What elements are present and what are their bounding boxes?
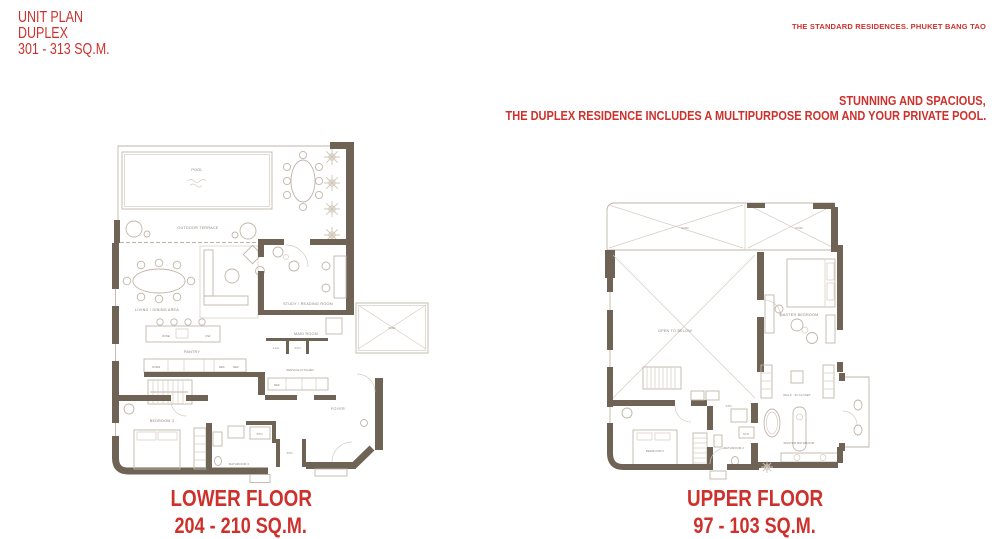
wall xyxy=(186,395,208,401)
wall xyxy=(266,338,328,341)
label-foyer: FOYER xyxy=(331,407,345,411)
wall xyxy=(114,220,120,243)
wall xyxy=(272,421,276,443)
title-block: UNIT PLAN DUPLEX 301 - 313 SQ.M. xyxy=(18,10,135,58)
wall xyxy=(354,448,372,466)
wall xyxy=(112,243,119,289)
wall xyxy=(286,341,289,354)
wall xyxy=(306,341,309,354)
door-arc xyxy=(764,300,781,317)
wall xyxy=(691,400,707,406)
label-open-to-below: OPEN TO BELOW xyxy=(658,329,692,333)
upper-floor-plan: VOID VOID OPEN TO BELOW xyxy=(585,195,891,487)
wc-room xyxy=(839,373,869,451)
wall xyxy=(115,395,171,401)
label-sto2-upper: STO. xyxy=(743,432,750,436)
wall xyxy=(751,443,758,465)
void-right: VOID xyxy=(748,205,834,248)
bedroom2-furniture xyxy=(622,408,707,469)
wall xyxy=(276,439,280,467)
pool: POOL xyxy=(122,152,272,209)
wall xyxy=(831,207,838,252)
label-dw: DW xyxy=(205,334,210,338)
wall xyxy=(208,468,268,475)
bathroom2-fixtures xyxy=(714,409,747,466)
tagline: STUNNING AND SPACIOUS, THE DUPLEX RESIDE… xyxy=(440,94,986,124)
wall xyxy=(258,239,284,245)
wall xyxy=(607,367,613,407)
wall xyxy=(607,278,613,292)
void-area: VOID xyxy=(356,303,428,353)
label-void: VOID xyxy=(388,326,395,330)
wall xyxy=(302,439,306,467)
label-service-kitchen: SERVICE KITCHEN xyxy=(286,368,314,372)
label-bedroom2: BEDROOM 2 xyxy=(646,449,665,453)
entry-steps xyxy=(315,469,347,476)
label-sto2: STO. xyxy=(256,432,263,436)
tagline-line2: THE DUPLEX RESIDENCE INCLUDES A MULTIPUR… xyxy=(505,109,986,124)
label-walk-in-closet: WALK - IN CLOSET xyxy=(783,393,811,397)
label-sto1-upper: STO. xyxy=(725,404,732,408)
brand-line: THE STANDARD RESIDENCES. PHUKET BANG TAO xyxy=(792,22,986,31)
label-ref3: REF xyxy=(274,383,280,387)
plants xyxy=(324,149,340,243)
wall xyxy=(757,362,764,372)
wall xyxy=(605,250,615,278)
wall xyxy=(837,245,843,330)
wall xyxy=(112,361,119,423)
wall xyxy=(751,403,758,423)
maid-bed xyxy=(326,318,342,334)
door-arc xyxy=(675,406,691,422)
label-void2: VOID xyxy=(795,226,802,230)
study-furniture xyxy=(273,247,346,298)
lower-floor-caption: LOWER FLOOR 204 - 210 SQ.M. xyxy=(111,487,371,537)
wall xyxy=(258,373,265,395)
service-kitchen-counter: REF xyxy=(268,378,328,390)
open-to-below: OPEN TO BELOW xyxy=(613,255,755,398)
bathroom3-fixtures xyxy=(213,426,244,466)
label-outdoor-terrace: OUTDOOR TERRACE xyxy=(177,226,218,230)
page-subtitle: DUPLEX xyxy=(18,26,68,42)
door-arc xyxy=(357,374,375,392)
wall xyxy=(246,421,276,425)
kitchen-island: WINE DW xyxy=(146,319,220,342)
label-pool: POOL xyxy=(191,168,202,172)
entry-step xyxy=(250,475,270,483)
label-sto1: STO. xyxy=(294,346,301,350)
label-pantry: PANTRY xyxy=(184,350,200,354)
wall xyxy=(144,372,265,377)
label-sto3: STO. xyxy=(286,451,293,455)
label-maid-room: MAID ROOM xyxy=(294,332,318,336)
label-study: STUDY / READING ROOM xyxy=(283,302,333,306)
page-title: UNIT PLAN xyxy=(18,10,83,26)
upper-floor-caption: UPPER FLOOR 97 - 103 SQ.M. xyxy=(625,487,885,537)
upper-floor-area: 97 - 103 SQ.M. xyxy=(694,515,816,537)
wall xyxy=(757,252,764,300)
wall xyxy=(346,243,354,315)
wall xyxy=(346,142,354,243)
wall xyxy=(258,271,264,315)
lower-floor-plan: POOL OUTDOOR TERRACE xyxy=(110,140,432,486)
wall xyxy=(306,462,356,469)
pantry-counter: OVEN REF REF xyxy=(144,359,246,372)
size-range: 301 - 313 SQ.M. xyxy=(18,42,110,58)
wall xyxy=(140,468,208,475)
void-left: VOID xyxy=(609,205,743,248)
label-void1: VOID xyxy=(681,226,688,230)
wall xyxy=(747,203,765,208)
wall xyxy=(314,395,336,400)
label-oven: OVEN xyxy=(152,365,161,369)
wall xyxy=(258,245,264,257)
lower-floor-area: 204 - 210 SQ.M. xyxy=(175,515,307,537)
label-bathroom3: BATHROOM 3 xyxy=(229,462,249,466)
wall xyxy=(206,423,212,469)
label-wine: WINE xyxy=(162,334,170,338)
label-bathroom2: BATHROOM 2 xyxy=(724,446,744,450)
wall xyxy=(727,464,759,470)
wall xyxy=(707,406,713,430)
lower-floor-title: LOWER FLOOR xyxy=(170,487,311,510)
wall xyxy=(112,306,119,344)
master-bathroom-fixtures xyxy=(764,407,839,462)
tagline-line1: STUNNING AND SPACIOUS, xyxy=(839,94,986,109)
label-master-bathroom: MASTER BATHROOM xyxy=(784,441,815,445)
label-living-dining: LIVING / DINING AREA xyxy=(135,308,179,312)
bedroom3-furniture xyxy=(124,404,206,469)
upper-floor-title: UPPER FLOOR xyxy=(687,487,823,510)
wall xyxy=(610,453,631,467)
wall xyxy=(837,362,843,372)
lounge-chairs xyxy=(126,221,256,239)
door-arc xyxy=(332,442,352,462)
storage-box xyxy=(706,391,719,400)
label-lau: LAU xyxy=(273,346,279,350)
brand-text: THE STANDARD RESIDENCES. PHUKET BANG TAO xyxy=(792,22,986,31)
terrace-outline xyxy=(118,146,346,241)
master-bedroom-furniture xyxy=(765,259,835,344)
wall xyxy=(265,395,297,400)
wall xyxy=(116,436,141,471)
wall xyxy=(607,310,613,350)
wall xyxy=(264,310,354,315)
wall xyxy=(757,317,764,362)
outdoor-dining-set xyxy=(283,151,322,210)
overhead-cabinet xyxy=(691,391,704,400)
foyer-table xyxy=(361,420,368,427)
wall xyxy=(631,464,709,470)
wall xyxy=(613,400,675,406)
wall xyxy=(375,378,383,450)
wall xyxy=(607,423,613,453)
label-ref2: REF xyxy=(233,365,239,369)
entry-step xyxy=(710,471,726,479)
label-bedroom3: BEDROOM 3 xyxy=(150,419,174,423)
label-master-bedroom: MASTER BEDROOM xyxy=(780,313,819,317)
label-ref1: REF xyxy=(219,365,225,369)
